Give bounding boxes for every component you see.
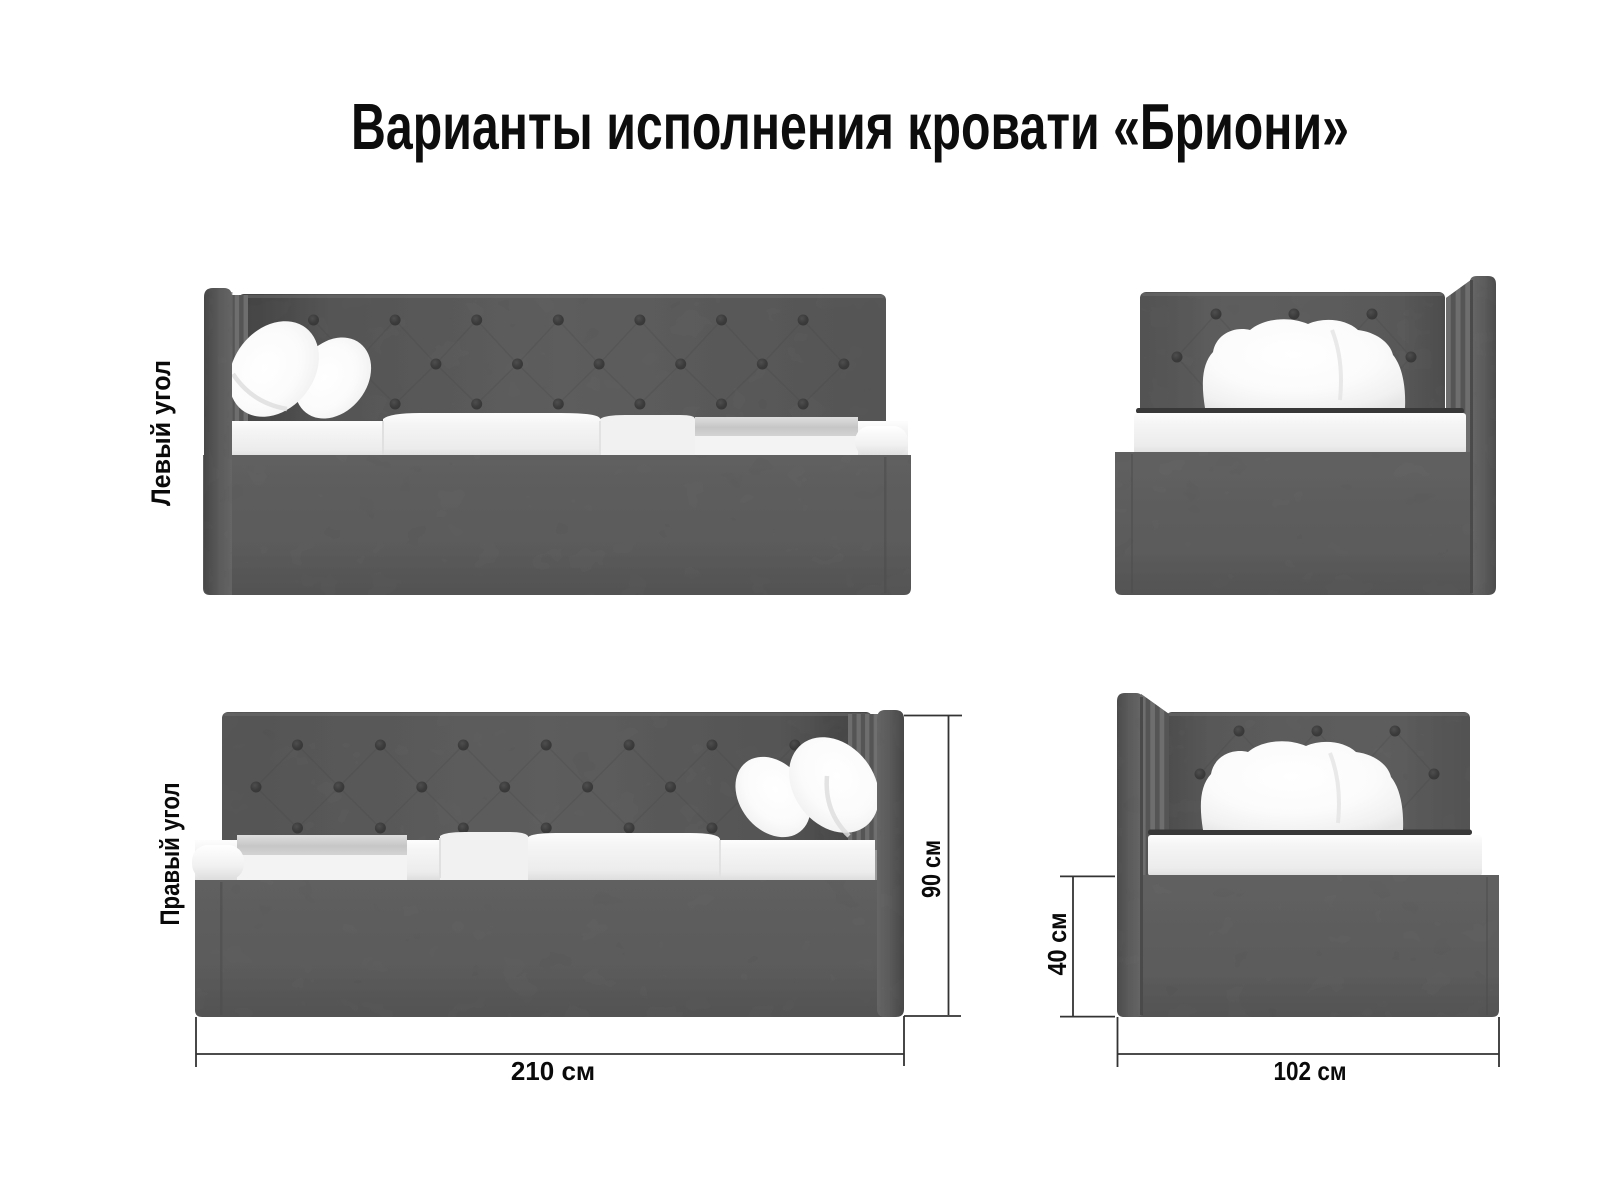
svg-text:90 см: 90 см (916, 840, 946, 898)
svg-text:Правый угол: Правый угол (155, 783, 185, 926)
svg-text:Варианты исполнения кровати «Б: Варианты исполнения кровати «Бриони» (351, 90, 1349, 163)
svg-text:210 см: 210 см (511, 1056, 595, 1086)
svg-text:Левый угол: Левый угол (146, 360, 176, 506)
svg-text:40 см: 40 см (1042, 913, 1072, 976)
svg-text:102 см: 102 см (1274, 1056, 1347, 1086)
